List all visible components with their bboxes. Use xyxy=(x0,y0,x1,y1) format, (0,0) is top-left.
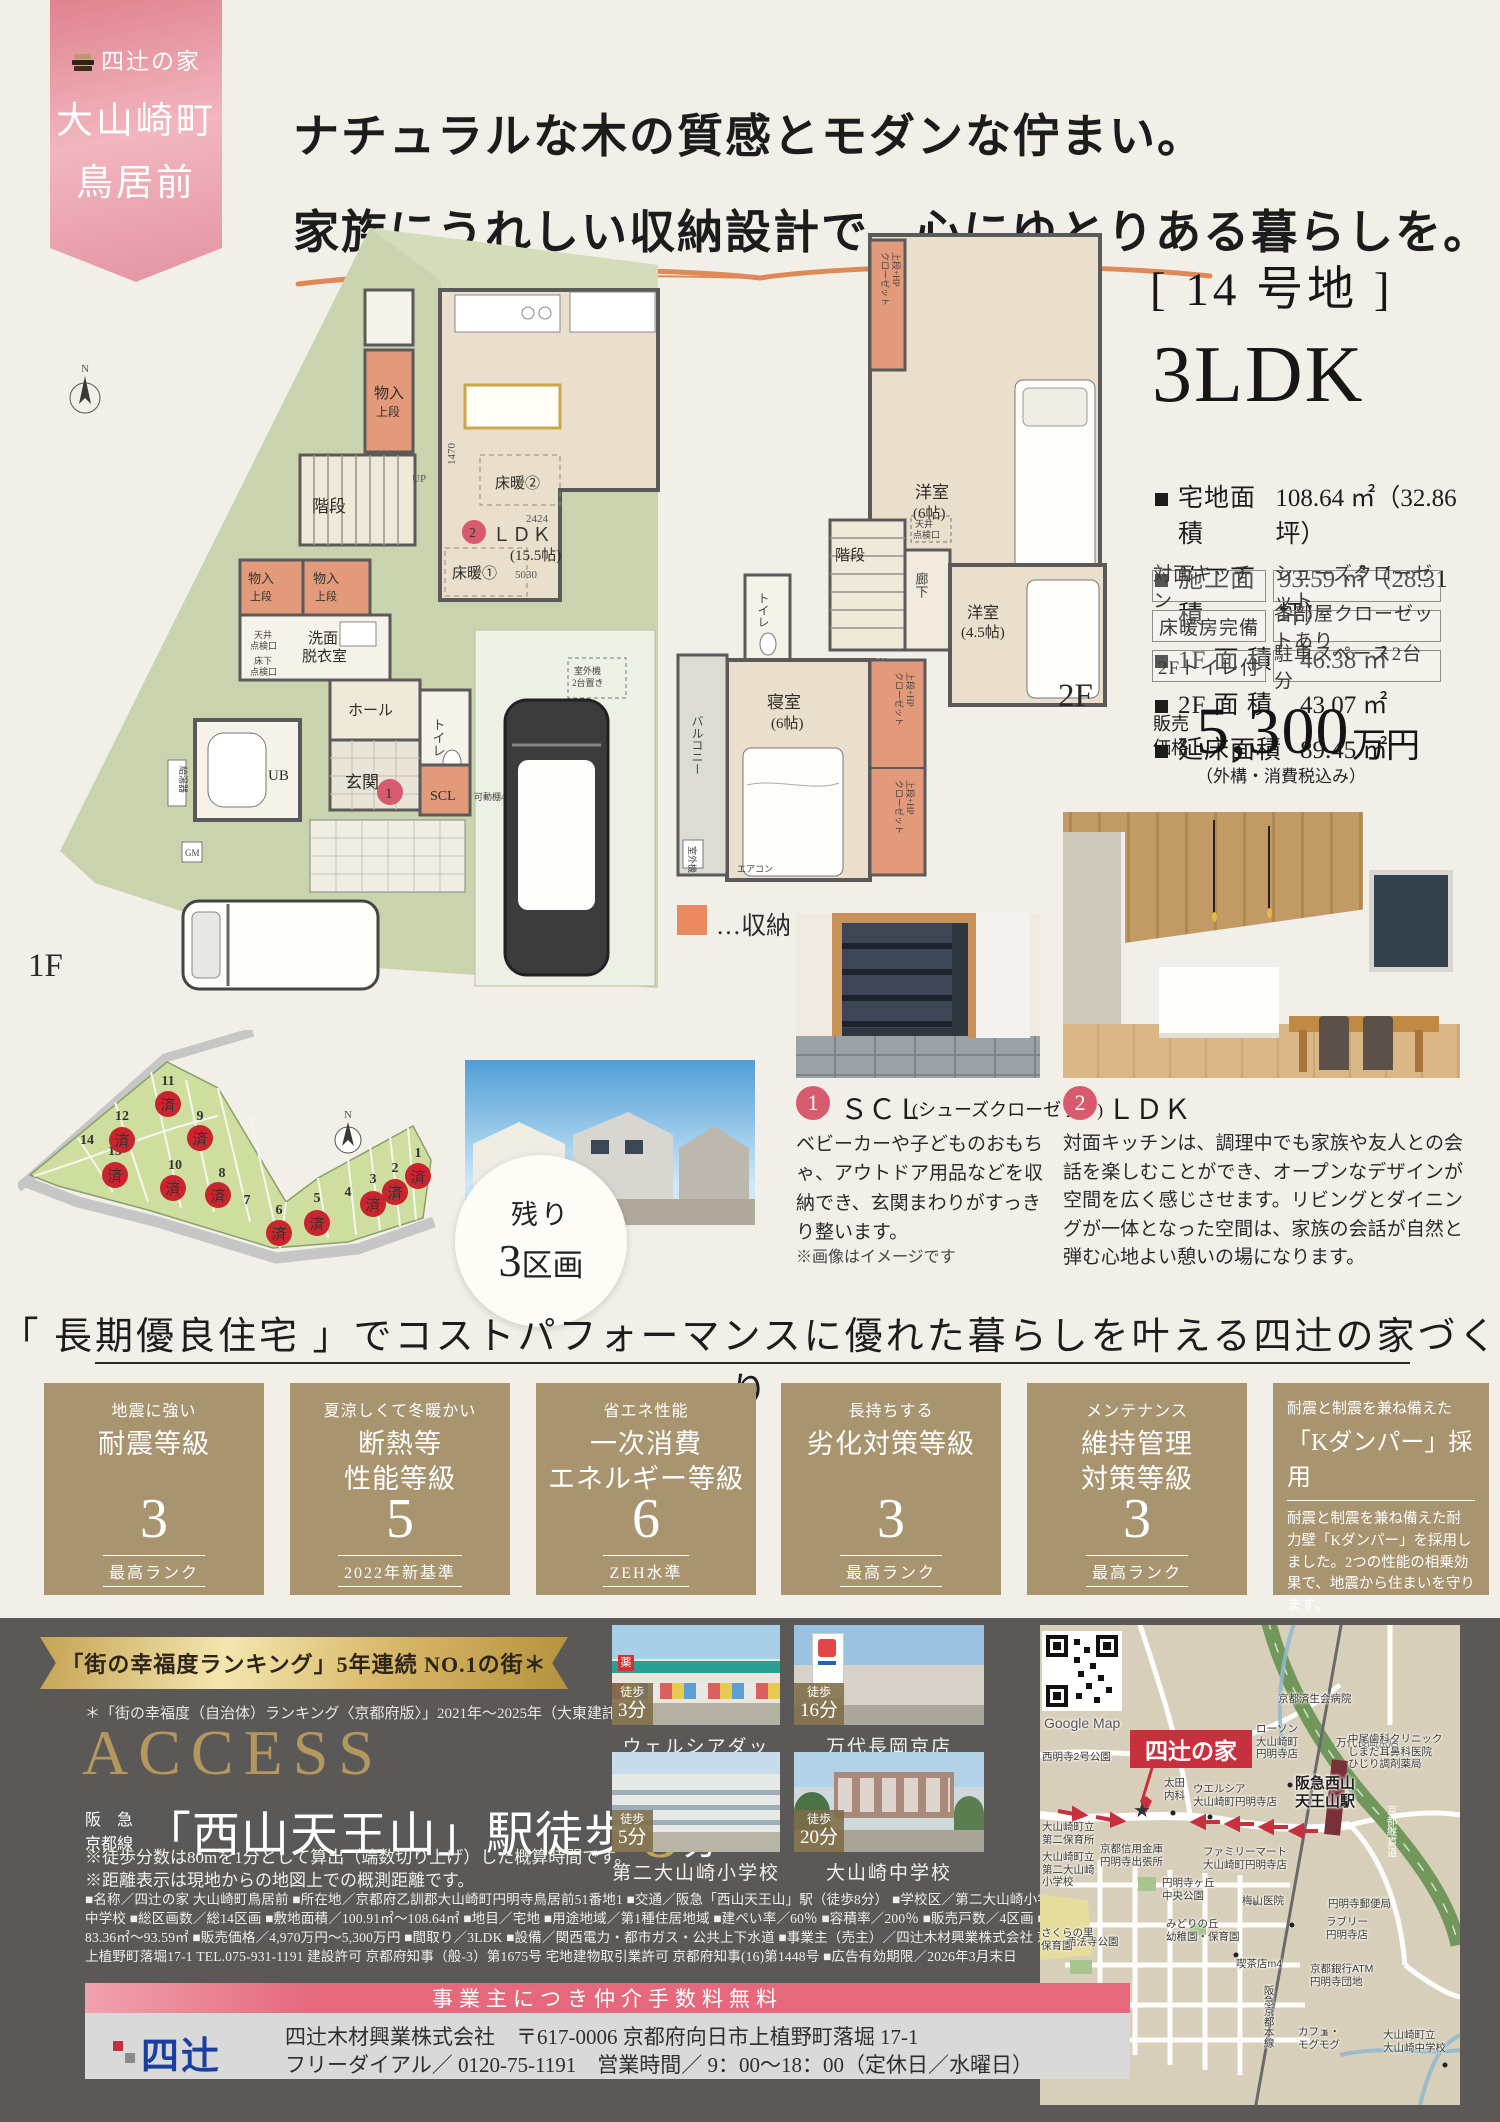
compass-icon: N xyxy=(70,363,100,413)
price-label: 販売 価格 xyxy=(1153,712,1189,761)
qr-code xyxy=(1042,1631,1122,1711)
company-contact-line: フリーダイアル／ 0120-75-1191 営業時間／ 9：00～18：00（定… xyxy=(285,2049,1033,2079)
price-unit: 万円 xyxy=(1352,718,1420,767)
label-boiler: 給湯器 xyxy=(178,766,189,793)
lot-number: 6 xyxy=(276,1203,283,1218)
svg-text:済: 済 xyxy=(107,1168,122,1185)
label-balcony: バルコニー xyxy=(690,715,704,775)
rating-value: 3 xyxy=(44,1491,264,1547)
label-room45: 洋室 xyxy=(967,604,999,622)
lot-number: 7 xyxy=(244,1193,251,1208)
rating-card: 地震に強い 耐震等級 3 最高ランク xyxy=(44,1383,264,1595)
label-up: UP xyxy=(412,473,426,485)
lot-number: 2 xyxy=(392,1161,399,1176)
access-note-2: ※距離表示は現地からの地図上での概測距離です。 xyxy=(85,1866,474,1891)
car-van-white xyxy=(183,901,378,989)
price-value: 5,300 xyxy=(1196,694,1350,770)
label-floorhatch2: 点検口 xyxy=(250,666,277,677)
label-entrance: 玄関 xyxy=(345,773,379,792)
label-toilet-2f: トイレ xyxy=(756,592,770,628)
place-photo-juniorhigh: 徒歩20分 xyxy=(794,1752,984,1852)
rating-value: 5 xyxy=(290,1491,510,1547)
ribbon-town: 大山崎町 xyxy=(50,90,222,144)
ldk-photo xyxy=(1063,812,1460,1078)
company-logo: 四辻 xyxy=(113,2025,221,2080)
rating-subtitle: メンテナンス xyxy=(1027,1397,1247,1421)
access-note-1: ※徒歩分数は80mを1分として算出（端数切り上げ）した概算時間です。 xyxy=(85,1843,632,1868)
kdamper-card: 耐震と制震を兼ね備えた 「Kダンパー」採用 耐震と制震を兼ね備えた耐力壁「Kダン… xyxy=(1273,1383,1489,1595)
place-photo-welcia: 薬 徒歩3分 xyxy=(612,1625,780,1725)
rating-title: 維持管理 対策等級 xyxy=(1027,1427,1247,1497)
map-label: 西明寺2号公園 xyxy=(1042,1751,1111,1764)
map-label: みどりの丘 幼稚園・保育園 xyxy=(1166,1918,1240,1943)
rating-subtitle: 省エネ性能 xyxy=(536,1397,756,1421)
label-senmen1: 洗面 xyxy=(308,630,338,647)
rating-card: 夏涼しくて冬暖かい 断熱等 性能等級 5 2022年新基準 xyxy=(290,1383,510,1595)
label-senmen2: 脱衣室 xyxy=(302,648,347,665)
sold-badge: 済 xyxy=(360,1191,386,1217)
google-map-label: Google Map xyxy=(1044,1715,1120,1732)
label-storage-a: 物入 xyxy=(248,571,274,586)
label-stairs-1f: 階段 xyxy=(312,497,346,516)
remaining-count: 3 xyxy=(499,1235,522,1286)
lot-number: 3 xyxy=(370,1172,377,1187)
label-floorhatch1: 床下 xyxy=(254,655,272,666)
label-jodan-top: 上段 xyxy=(376,404,400,419)
map-label: 中尾歯科クリニック しまだ耳鼻科医院 ひじり調剤薬局 xyxy=(1348,1733,1443,1771)
map-label: 梅山医院 xyxy=(1242,1895,1284,1908)
lotmap-compass-icon: N xyxy=(335,1109,361,1153)
rating-value: 6 xyxy=(536,1491,756,1547)
point-2-title: ＬＤＫ xyxy=(1107,1088,1191,1128)
logo-square-red xyxy=(113,2041,123,2051)
map-label: ウエルシア 大山崎町円明寺店 xyxy=(1193,1783,1277,1808)
image-disclaimer: ※画像はイメージです xyxy=(796,1243,956,1267)
rating-subtitle: 地震に強い xyxy=(44,1397,264,1421)
place-caption: 大山崎中学校 xyxy=(794,1858,984,1885)
svg-text:済: 済 xyxy=(160,1097,175,1114)
headline-line1: ナチュラルな木の質感とモダンな佇まい。 xyxy=(293,100,1205,166)
label-closet-m2: クローゼット xyxy=(894,672,905,726)
svg-text:済: 済 xyxy=(210,1188,225,1205)
label-master: 寝室 xyxy=(767,692,801,712)
label-corridor: 廊下 xyxy=(914,571,929,598)
price-note: （外構・消費税込み） xyxy=(1196,762,1366,787)
walk-badge: 徒歩16分 xyxy=(794,1683,844,1725)
label-scl: SCL xyxy=(430,789,456,804)
floor-label-1f: 1F xyxy=(28,948,63,985)
map-label: 円明寺ヶ丘 中央公園 xyxy=(1162,1877,1215,1902)
rating-note: ZEH水準 xyxy=(603,1555,688,1587)
label-gm: GM xyxy=(185,848,200,858)
plan-type: 3LDK xyxy=(1152,330,1364,421)
feature-tag: 各部屋クローゼットあり xyxy=(1273,610,1441,642)
map-label: 円明寺郵便局 xyxy=(1328,1898,1391,1911)
map-label: 京都銀行ATM 円明寺団地 xyxy=(1310,1963,1373,1988)
label-outdoor-unit2: 2台置き xyxy=(572,677,604,688)
site-plan-1f: N 床暖② 床暖① 2424 2 ＬＤＫ (15.5帖) 5030 1470 物… xyxy=(40,160,660,1000)
storage-legend-swatch xyxy=(677,905,707,935)
home-marker-label: 四辻の家 xyxy=(1130,1730,1252,1768)
flyer-page: 四辻の家 大山崎町 鳥居前 ナチュラルな木の質感とモダンな佇まい。 家族にうれし… xyxy=(0,0,1500,2122)
rating-value: 3 xyxy=(781,1491,1001,1547)
label-room45-size: (4.5帖) xyxy=(961,624,1005,641)
walk-badge: 徒歩5分 xyxy=(612,1810,653,1852)
label-stairs-2f: 階段 xyxy=(835,547,865,564)
remaining-unit: 区画 xyxy=(522,1248,584,1283)
map-label: 喫茶店m4 xyxy=(1236,1958,1282,1971)
rating-title: 劣化対策等級 xyxy=(781,1427,1001,1497)
spec-value: 108.64 ㎡（32.86 坪） xyxy=(1275,478,1465,550)
feature-tag: 床暖房完備 xyxy=(1152,610,1266,642)
place-photo-mandai: 徒歩16分 xyxy=(794,1625,984,1725)
label-ceilhatch1: 天井 xyxy=(254,629,272,640)
label-closet-m1: 上段+HP xyxy=(905,672,916,707)
dim-2424: 2424 xyxy=(526,513,549,525)
map-label: 京都済生会病院 xyxy=(1278,1693,1352,1706)
svg-text:済: 済 xyxy=(309,1216,324,1233)
kdamper-desc: 耐震と制震を兼ね備えた耐力壁「Kダンパー」を採用しました。2つの性能の相乗効果で… xyxy=(1287,1509,1475,1618)
rating-note: 最高ランク xyxy=(840,1555,942,1587)
label-ub: UB xyxy=(268,768,289,784)
lot-number: 1 xyxy=(415,1146,422,1161)
lot-map: N 1 2 3 4 5 6 7 8 9 10 11 12 13 14 済 済 済… xyxy=(18,1030,488,1285)
svg-text:★: ★ xyxy=(1133,1800,1151,1822)
kdamper-subtitle: 耐震と制震を兼ね備えた xyxy=(1287,1397,1475,1418)
label-hall: ホール xyxy=(348,703,393,719)
plan-marker-2: 2 xyxy=(469,526,476,541)
feature-tag: 2Fトイレ付 xyxy=(1152,650,1266,682)
label-closet-n1: 上段+HP xyxy=(905,780,916,815)
feature-tag: シューズクローゼット xyxy=(1273,570,1441,602)
car-van-dark xyxy=(505,700,608,975)
rating-title: 耐震等級 xyxy=(44,1427,264,1497)
label-closet-t1: 上段+HP xyxy=(891,252,902,287)
svg-text:N: N xyxy=(81,363,89,375)
access-title: ACCESS xyxy=(82,1716,384,1790)
happiness-ribbon: 「街の幸福度ランキング」5年連続 NO.1の街＊ xyxy=(40,1637,568,1689)
place-photo-elementary: 徒歩5分 xyxy=(612,1752,780,1852)
label-hatch2f-2: 点検口 xyxy=(913,529,940,540)
railway-label: 阪急京都本線 xyxy=(1262,1985,1275,2048)
lot-number: 5 xyxy=(314,1191,321,1206)
svg-text:済: 済 xyxy=(192,1131,207,1148)
lot-number-title: [ 14 号地 ] xyxy=(1150,250,1394,319)
footer-company-box: 四辻 四辻木材興業株式会社 〒617-0006 京都府向日市上植野町落堀 17-… xyxy=(85,2013,1130,2079)
plan-marker-1: 1 xyxy=(385,786,393,802)
point-2-badge: 2 xyxy=(1063,1086,1097,1120)
sold-badge: 済 xyxy=(102,1162,128,1188)
rating-card: 長持ちする 劣化対策等級 3 最高ランク xyxy=(781,1383,1001,1595)
lot-number: 9 xyxy=(197,1109,204,1124)
lot-number: 11 xyxy=(161,1074,174,1089)
svg-text:済: 済 xyxy=(114,1133,129,1150)
rating-card: メンテナンス 維持管理 対策等級 3 最高ランク xyxy=(1027,1383,1247,1595)
label-closet-t2: クローゼット xyxy=(880,252,891,306)
storage-legend-label: …収納 xyxy=(716,906,791,942)
walk-badge: 徒歩20分 xyxy=(794,1810,844,1852)
label-outdoor-unit1: 室外機 xyxy=(574,665,601,676)
svg-text:済: 済 xyxy=(271,1226,286,1243)
sold-badge: 済 xyxy=(187,1125,213,1151)
rating-subtitle: 夏涼しくて冬暖かい xyxy=(290,1397,510,1421)
point-2-desc: 対面キッチンは、調理中でも家族や友人との会話を楽しむことができ、オープンなデザイ… xyxy=(1063,1130,1463,1273)
label-toilet-1f: トイレ xyxy=(431,718,446,757)
label-outdoor2f: 室外機 xyxy=(687,846,698,873)
label-jodan-a: 上段 xyxy=(250,589,272,603)
scl-photo xyxy=(796,913,1040,1078)
wood-stack-icon xyxy=(71,53,95,75)
sold-badge: 済 xyxy=(205,1182,231,1208)
lotmap-north-label: N xyxy=(344,1109,352,1121)
label-floorheat1: 床暖① xyxy=(452,565,497,582)
rating-card: 省エネ性能 一次消費 エネルギー等級 6 ZEH水準 xyxy=(536,1383,756,1595)
kdamper-title: 「Kダンパー」採用 xyxy=(1287,1422,1475,1492)
company-name-line: 四辻木材興業株式会社 〒617-0006 京都府向日市上植野町落堀 17-1 xyxy=(285,2021,918,2051)
label-storage-b: 物入 xyxy=(313,571,339,586)
feature-tag: 駐車スペース2台分 xyxy=(1273,650,1441,682)
svg-text:済: 済 xyxy=(410,1169,425,1186)
sold-badge: 済 xyxy=(266,1220,292,1246)
logo-square-gray xyxy=(125,2053,135,2063)
label-aircon: エアコン xyxy=(737,864,773,874)
legal-fine-print: ■名称／四辻の家 大山崎町鳥居前 ■所在地／京都府乙訓郡大山崎町円明寺鳥居前51… xyxy=(85,1890,1130,1967)
spec-label: 宅地面積 xyxy=(1178,478,1275,550)
floor-label-2f: 2F xyxy=(1058,678,1093,715)
walk-badge: 徒歩3分 xyxy=(612,1683,653,1725)
label-master-size: (6帖) xyxy=(771,715,804,732)
map-label: 大山崎町立 第二保育所 xyxy=(1042,1821,1095,1846)
label-floorheat2: 床暖② xyxy=(495,475,540,492)
banner-underline xyxy=(95,1362,1410,1364)
point-1-badge: 1 xyxy=(796,1086,830,1120)
label-jodan-b: 上段 xyxy=(315,589,337,603)
feature-tag: 対面キッチン xyxy=(1152,570,1266,602)
rating-title: 断熱等 性能等級 xyxy=(290,1427,510,1497)
rating-title: 一次消費 エネルギー等級 xyxy=(536,1427,756,1497)
map-label: 大山崎町立 第二大山崎 小学校 xyxy=(1042,1851,1095,1889)
map-label: 京都信用金庫 円明寺出張所 xyxy=(1100,1843,1163,1868)
map-label: ローソン 大山崎町 円明寺店 xyxy=(1256,1723,1298,1761)
map-label: 大山崎町立 大山崎中学校 xyxy=(1383,2029,1446,2054)
brand-name: 四辻の家 xyxy=(101,49,201,74)
sold-badge: 済 xyxy=(109,1127,135,1153)
place-caption: 第二大山崎小学校 xyxy=(612,1858,780,1885)
rating-note: 2022年新基準 xyxy=(338,1555,462,1587)
sold-badge: 済 xyxy=(304,1210,330,1236)
spec-row: 宅地面積108.64 ㎡（32.86 坪） xyxy=(1155,478,1465,550)
label-ceilhatch2: 点検口 xyxy=(250,640,277,651)
rating-note: 最高ランク xyxy=(1086,1555,1188,1587)
label-hatch2f-1: 天井 xyxy=(915,518,933,529)
map-label: カフェ・ モグモグ xyxy=(1298,2026,1340,2051)
dim-1470: 1470 xyxy=(446,443,458,466)
rating-value: 3 xyxy=(1027,1491,1247,1547)
station-marker-label: 阪急西山 天王山駅 xyxy=(1295,1775,1355,1811)
point-1-desc: ベビーカーや子どものおもちゃ、アウトドア用品などを収納でき、玄関まわりがすっきり… xyxy=(796,1130,1046,1248)
label-storage-top: 物入 xyxy=(374,385,404,402)
lot-number: 14 xyxy=(80,1133,94,1148)
highway-label: 京都縦貫道 xyxy=(1385,1805,1398,1858)
footer-banner: 事業主につき仲介手数料無料 xyxy=(85,1983,1130,2013)
rating-note: 最高ランク xyxy=(103,1555,205,1587)
map-label: ファミリーマート 大山崎町円明寺店 xyxy=(1203,1846,1287,1871)
map-label: ラブリー 円明寺店 xyxy=(1326,1916,1368,1941)
sold-badge: 済 xyxy=(382,1179,408,1205)
lot-number: 4 xyxy=(345,1185,352,1200)
map-label: 太田 内科 xyxy=(1164,1777,1185,1802)
floor-plan-2f: 上段+HP クローゼット 洋室 (6帖) 階段 DN 廊下 天井 点検口 トイレ… xyxy=(675,220,1115,890)
lot-number: 8 xyxy=(219,1166,226,1181)
rating-subtitle: 長持ちする xyxy=(781,1397,1001,1421)
lot-number: 12 xyxy=(115,1109,129,1124)
label-closet-n2: クローゼット xyxy=(894,780,905,834)
dim-5030: 5030 xyxy=(515,569,538,581)
svg-text:済: 済 xyxy=(165,1181,180,1198)
map-label: さくらの里 保育園 xyxy=(1041,1927,1094,1952)
sold-badge: 済 xyxy=(160,1175,186,1201)
svg-text:済: 済 xyxy=(387,1185,402,1202)
svg-text:済: 済 xyxy=(365,1197,380,1214)
label-ldk-size: (15.5帖) xyxy=(510,547,561,564)
sold-badge: 済 xyxy=(405,1163,431,1189)
company-logo-text: 四辻 xyxy=(141,2036,221,2078)
lot-number: 10 xyxy=(168,1158,182,1173)
label-ldk: ＬＤＫ xyxy=(492,525,552,546)
label-room6: 洋室 xyxy=(915,483,949,502)
sold-badge: 済 xyxy=(155,1091,181,1117)
rail-company: 阪 急 xyxy=(85,1809,133,1833)
